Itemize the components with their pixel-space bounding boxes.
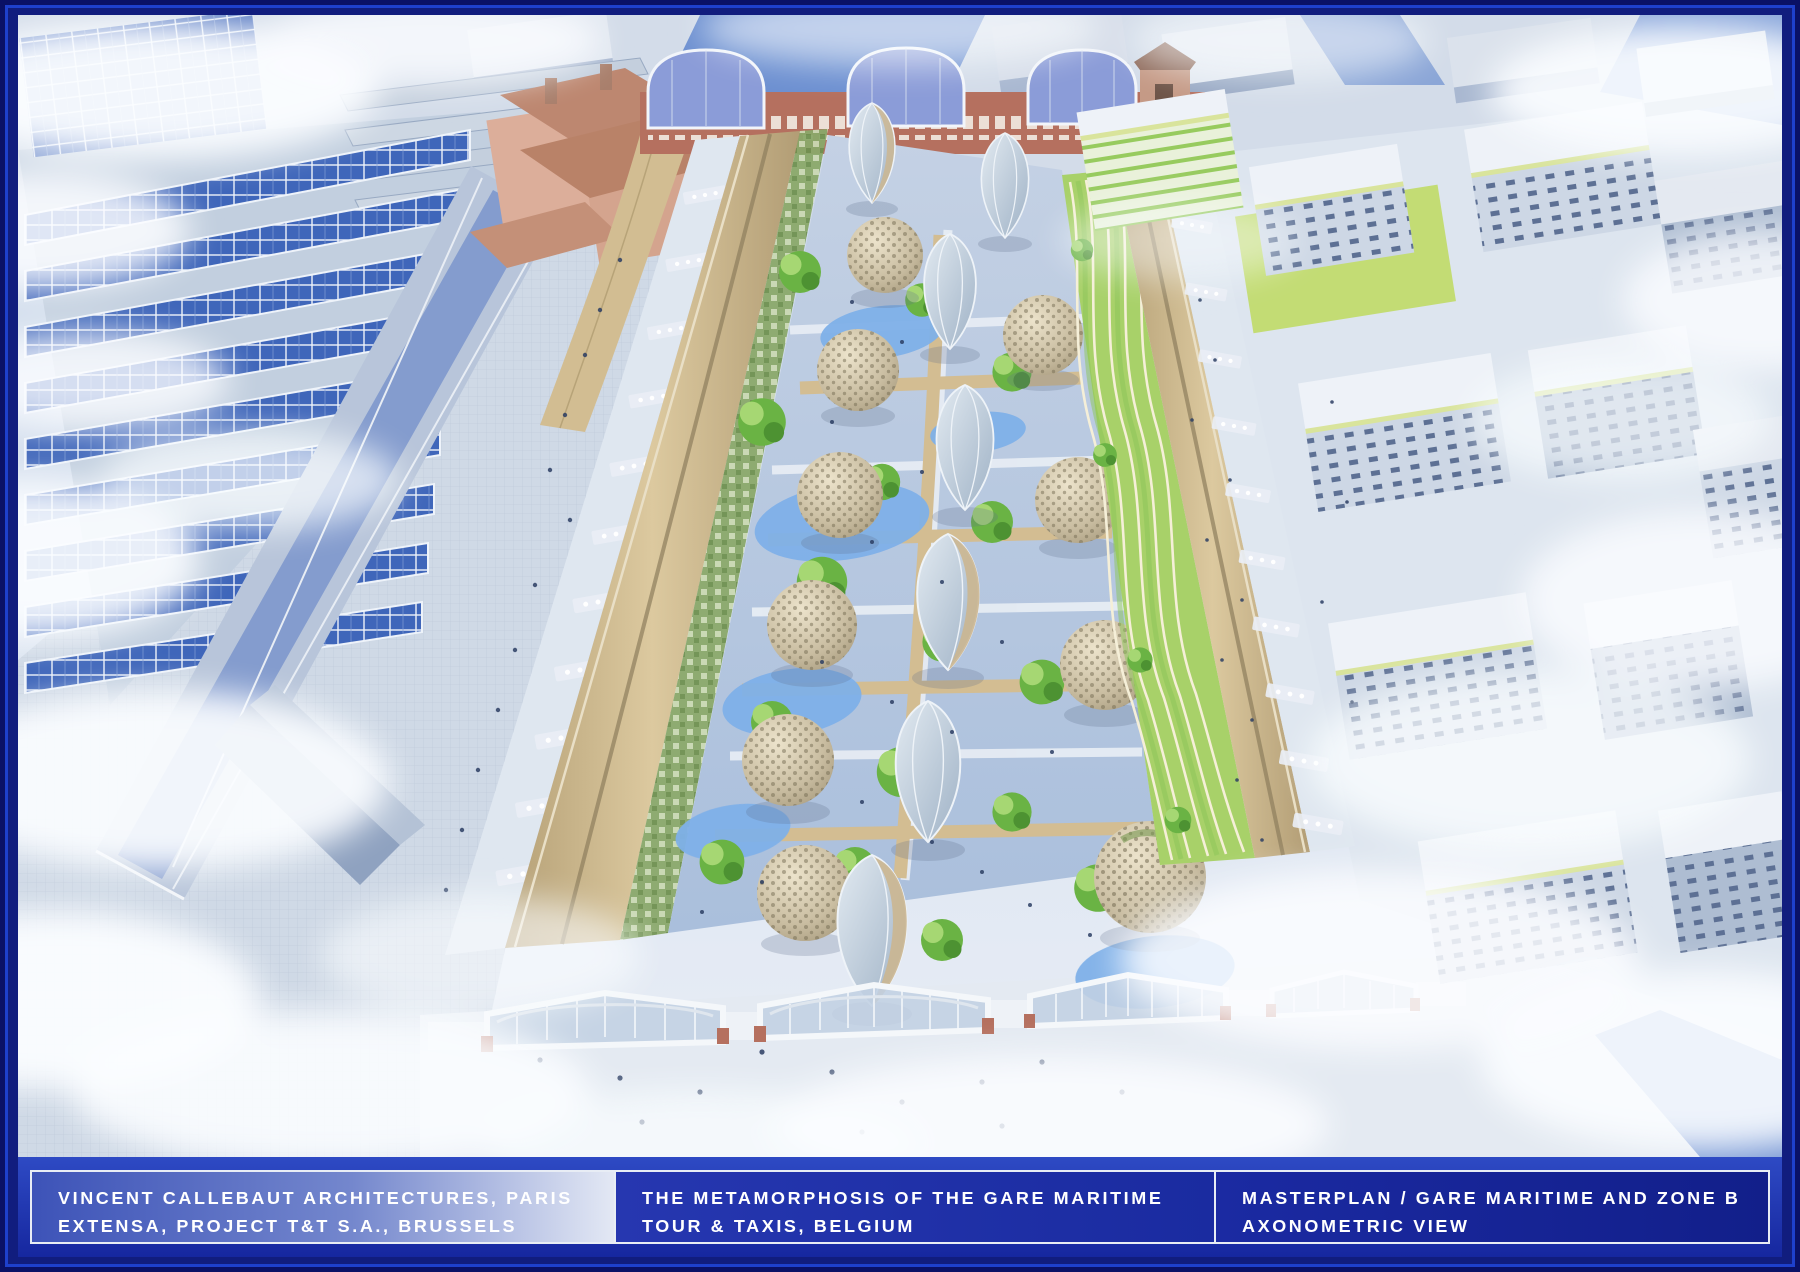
caption-panel-project: THE METAMORPHOSIS OF THE GARE MARITIME T… bbox=[614, 1172, 1214, 1242]
dome-pavilion bbox=[1003, 295, 1083, 391]
dome-pavilion bbox=[817, 329, 899, 427]
dome-pavilion bbox=[742, 714, 834, 824]
drawing-line-2: AXONOMETRIC VIEW bbox=[1242, 1212, 1768, 1239]
dome-pavilion bbox=[767, 580, 857, 687]
caption-strip: VINCENT CALLEBAUT ARCHITECTURES, PARIS E… bbox=[30, 1170, 1770, 1244]
caption-bar: VINCENT CALLEBAUT ARCHITECTURES, PARIS E… bbox=[18, 1157, 1782, 1257]
project-line-2: TOUR & TAXIS, BELGIUM bbox=[642, 1212, 1214, 1239]
rendering-image bbox=[18, 15, 1782, 1157]
credits-line-1: VINCENT CALLEBAUT ARCHITECTURES, PARIS bbox=[58, 1184, 614, 1211]
dome-pavilion bbox=[847, 217, 923, 308]
project-line-1: THE METAMORPHOSIS OF THE GARE MARITIME bbox=[642, 1184, 1214, 1211]
credits-line-2: EXTENSA, PROJECT T&T S.A., BRUSSELS bbox=[58, 1212, 614, 1239]
caption-panel-drawing: MASTERPLAN / GARE MARITIME AND ZONE B AX… bbox=[1214, 1172, 1768, 1242]
dome-pavilion bbox=[797, 452, 883, 554]
rendering-svg bbox=[18, 15, 1782, 1157]
drawing-line-1: MASTERPLAN / GARE MARITIME AND ZONE B bbox=[1242, 1184, 1768, 1211]
caption-panel-credits: VINCENT CALLEBAUT ARCHITECTURES, PARIS E… bbox=[32, 1172, 614, 1242]
